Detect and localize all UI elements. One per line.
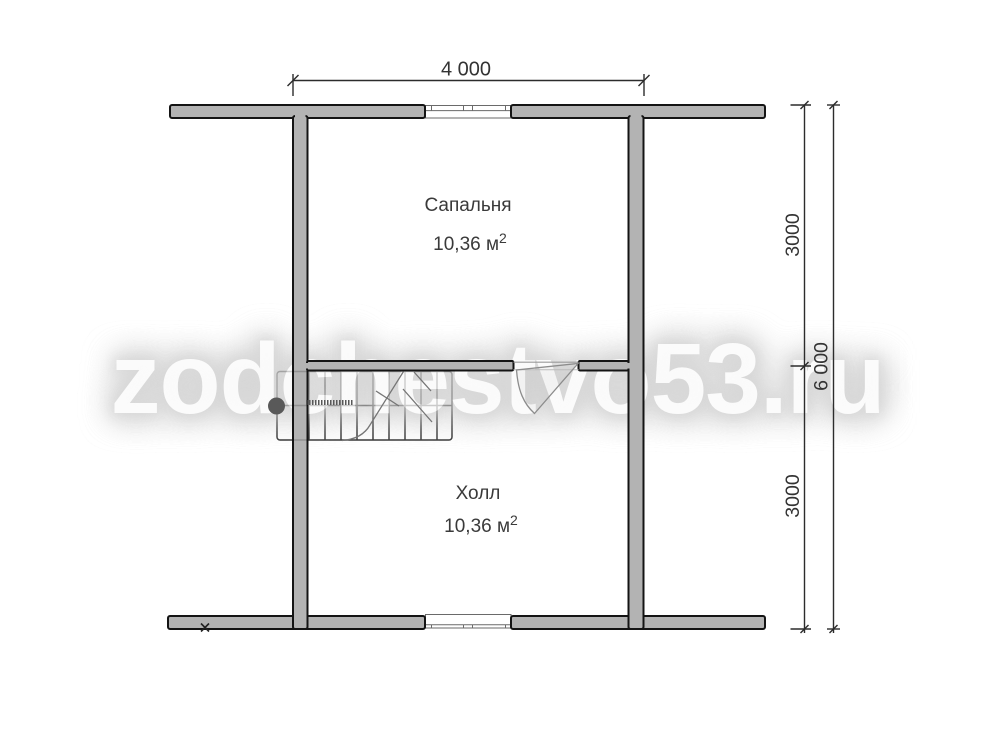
svg-text:10,36 м2: 10,36 м2 [444, 512, 518, 537]
svg-text:4 000: 4 000 [441, 59, 491, 81]
svg-text:10,36 м2: 10,36 м2 [433, 230, 507, 255]
svg-text:3000: 3000 [782, 474, 804, 518]
svg-text:Холл: Холл [456, 483, 501, 504]
svg-text:6 000: 6 000 [811, 342, 833, 391]
svg-text:Сапальня: Сапальня [424, 195, 511, 216]
svg-text:3000: 3000 [782, 213, 804, 257]
